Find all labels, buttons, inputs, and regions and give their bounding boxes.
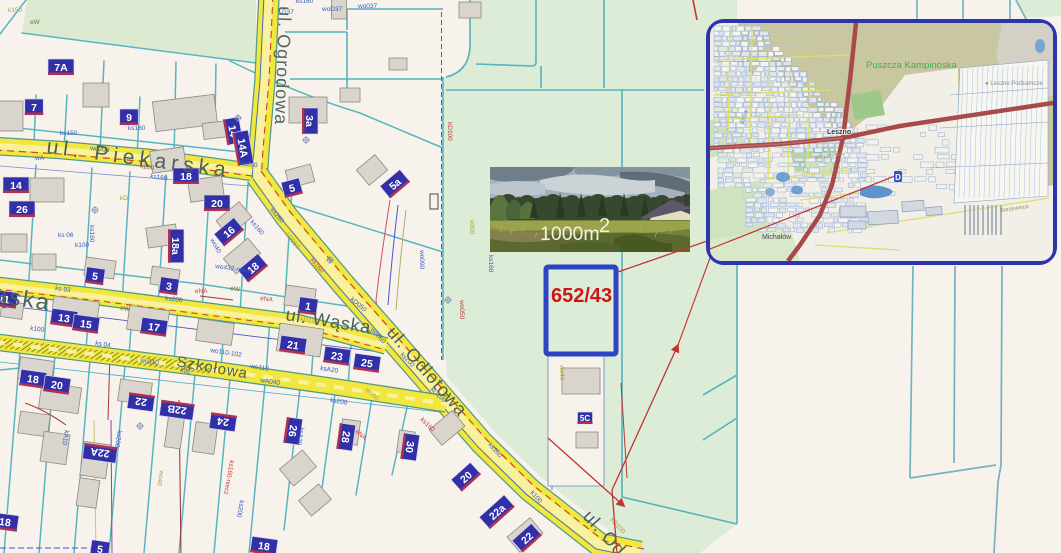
svg-text:9: 9 xyxy=(126,112,132,124)
svg-text:18a: 18a xyxy=(169,237,181,255)
svg-text:kD100: kD100 xyxy=(446,122,453,141)
svg-text:20: 20 xyxy=(50,379,63,393)
svg-text:eW: eW xyxy=(120,305,131,313)
svg-text:ks160: ks160 xyxy=(128,125,146,132)
svg-text:Michałów: Michałów xyxy=(762,234,792,241)
svg-text:21: 21 xyxy=(286,339,299,353)
svg-text:k100: k100 xyxy=(75,242,89,249)
svg-text:18: 18 xyxy=(257,540,270,553)
svg-text:7: 7 xyxy=(31,102,37,114)
svg-text:14: 14 xyxy=(10,180,22,192)
svg-text:13: 13 xyxy=(57,312,70,326)
svg-text:24: 24 xyxy=(216,414,229,428)
svg-text:k090: k090 xyxy=(468,220,475,234)
svg-text:18: 18 xyxy=(26,373,39,387)
svg-text:eW: eW xyxy=(230,285,241,293)
svg-text:kD: kD xyxy=(120,195,128,202)
svg-text:wA: wA xyxy=(34,155,45,162)
svg-text:20: 20 xyxy=(211,198,223,210)
svg-text:15: 15 xyxy=(79,318,92,332)
svg-text:ks 06: ks 06 xyxy=(58,232,74,239)
svg-text:Leszno: Leszno xyxy=(827,129,851,136)
svg-text:23: 23 xyxy=(330,350,343,364)
svg-text:eNA: eNA xyxy=(195,288,208,295)
svg-text:7A: 7A xyxy=(54,62,68,74)
svg-text:652/43: 652/43 xyxy=(551,285,612,307)
svg-text:wo090: wo090 xyxy=(418,249,425,270)
svg-text:2: 2 xyxy=(599,215,610,237)
svg-text:ul. Ogrodowa: ul. Ogrodowa xyxy=(271,6,295,126)
svg-text:26: 26 xyxy=(16,204,28,216)
svg-text:k150: k150 xyxy=(8,7,22,14)
svg-text:● Leszno Podzamcze: ● Leszno Podzamcze xyxy=(985,81,1043,87)
svg-text:woD37: woD37 xyxy=(321,6,343,13)
svg-text:Puszcza Kampinoska: Puszcza Kampinoska xyxy=(866,60,958,71)
svg-text:ks160: ks160 xyxy=(487,255,494,273)
svg-text:D: D xyxy=(895,173,901,182)
svg-text:3a: 3a xyxy=(303,115,315,127)
svg-text:28: 28 xyxy=(338,430,352,443)
svg-text:ks160: ks160 xyxy=(296,0,314,5)
svg-text:5C: 5C xyxy=(580,414,590,423)
svg-text:22: 22 xyxy=(134,394,147,408)
svg-text:18: 18 xyxy=(0,516,12,530)
svg-text:17: 17 xyxy=(147,321,160,335)
svg-text:25: 25 xyxy=(360,357,373,371)
svg-text:1000m: 1000m xyxy=(540,223,600,245)
svg-text:wo037: wo037 xyxy=(357,3,378,10)
svg-text:ks150: ks150 xyxy=(60,130,78,137)
svg-text:ks160: ks160 xyxy=(88,225,95,243)
svg-text:eW: eW xyxy=(30,19,41,26)
svg-text:30: 30 xyxy=(402,440,416,453)
svg-text:wo050: wo050 xyxy=(458,299,465,320)
svg-text:wo40: wo40 xyxy=(558,364,565,381)
